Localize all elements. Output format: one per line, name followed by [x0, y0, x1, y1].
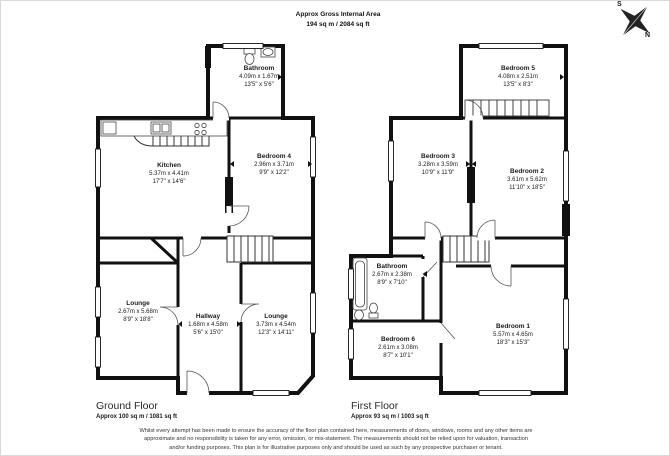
room-label-gf-lounge-right: Lounge 3.73m x 4.54m 12'3" x 14'11": [256, 312, 296, 338]
ground-floor-title: Ground Floor: [96, 400, 158, 412]
room-label-gf-hallway: Hallway 1.68m x 4.58m 5'6" x 15'0": [188, 312, 228, 338]
gross-internal-area-header: Approx Gross Internal Area 194 sq m / 20…: [188, 10, 488, 30]
header-title: Approx Gross Internal Area: [188, 10, 488, 20]
room-label-gf-kitchen: Kitchen 5.37m x 4.41m 17'7" x 14'6": [149, 161, 189, 187]
first-floor-title: First Floor: [351, 400, 398, 412]
first-floor-area: Approx 93 sq m / 1003 sq ft: [351, 414, 429, 420]
room-label-ff-bedroom-5: Bedroom 5 4.08m x 2.51m 13'5" x 8'3": [498, 64, 538, 90]
floorplan-page: Approx Gross Internal Area 194 sq m / 20…: [0, 0, 670, 456]
room-label-ff-bedroom-2: Bedroom 2 3.61m x 5.62m 11'10" x 18'5": [507, 167, 547, 193]
gf-exterior-walls: [98, 46, 313, 393]
room-label-ff-bathroom: Bathroom 2.67m x 2.38m 8'9" x 7'10": [372, 262, 412, 288]
room-label-gf-lounge-left: Lounge 2.67m x 5.68m 8'9" x 18'8": [118, 299, 158, 325]
ff-bed5-railing: [465, 100, 549, 116]
compass-north-label: N: [645, 32, 650, 39]
room-label-gf-bathroom: Bathroom 4.09m x 1.67m 13'5" x 5'6": [239, 64, 279, 90]
room-label-gf-bedroom-4: Bedroom 4 2.96m x 3.71m 9'9" x 12'2": [254, 152, 294, 178]
compass-south-label: S: [617, 1, 622, 8]
gf-kitchen-units: [101, 120, 227, 136]
gf-stairs-mid: [227, 236, 273, 262]
ground-floor-area: Approx 100 sq m / 1081 sq ft: [96, 414, 177, 420]
room-label-ff-bedroom-6: Bedroom 6 2.61m x 3.08m 8'7" x 10'1": [378, 335, 418, 361]
room-label-ff-bedroom-1: Bedroom 1 5.57m x 4.65m 18'3" x 15'3": [493, 322, 533, 348]
ground-floor-plan: [96, 44, 316, 396]
floorplan-drawing: [1, 1, 670, 456]
header-area: 194 sq m / 2084 sq ft: [188, 20, 488, 30]
room-label-ff-bedroom-3: Bedroom 3 3.28m x 3.59m 10'9" x 11'9": [418, 152, 458, 178]
disclaimer-text: Whilst every attempt has been made to en…: [136, 427, 536, 452]
